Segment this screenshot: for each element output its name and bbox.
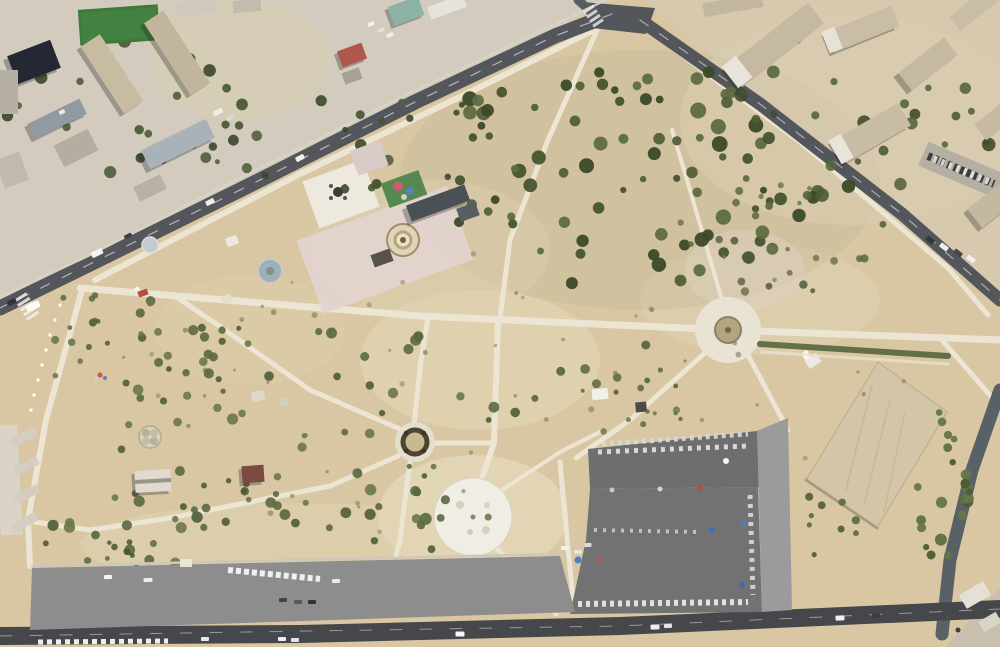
trees-urban-nw-tree bbox=[104, 166, 116, 178]
trees-urban-ne-tree bbox=[960, 83, 971, 94]
trees-urban-nw-tree bbox=[135, 125, 144, 134]
trees-south-band-tree bbox=[180, 503, 187, 510]
stall-markers-dot bbox=[658, 487, 663, 492]
vehicles-car bbox=[835, 615, 844, 620]
shrub-speckle-tree bbox=[261, 305, 264, 308]
screenshot-stage bbox=[0, 0, 1000, 647]
woodland-ne-tree bbox=[765, 202, 773, 210]
trees-mid-park-tree bbox=[303, 500, 309, 506]
big-circle-marks-dot bbox=[482, 526, 490, 534]
trees-north-band-tree bbox=[398, 99, 405, 106]
vehicles-car bbox=[201, 637, 209, 641]
trees-north-band-tree bbox=[235, 121, 243, 129]
shrub-speckle-tree bbox=[634, 314, 637, 317]
trees-enclosure-tree bbox=[809, 513, 814, 518]
woodland-ne-tree bbox=[656, 96, 664, 104]
trees-south-band-tree bbox=[441, 495, 450, 504]
trees-east-road-tree bbox=[966, 489, 973, 496]
ring-plaza-center-dot bbox=[725, 327, 731, 333]
trees-mid-park-tree bbox=[403, 344, 413, 354]
monument-center-dot bbox=[343, 184, 347, 188]
woodland-ne-tree bbox=[792, 209, 805, 222]
trees-south-band-tree bbox=[222, 518, 230, 526]
shrubs-market-north-tree bbox=[600, 428, 607, 435]
pavilion-dark bbox=[635, 402, 647, 413]
shrub-speckle-tree bbox=[149, 352, 154, 357]
trees-mid-park-tree bbox=[236, 326, 241, 331]
trees-south-band-tree bbox=[64, 521, 75, 532]
shrub-speckle-tree bbox=[856, 370, 860, 374]
trees-north-band-tree bbox=[261, 172, 268, 179]
trees-mid-park-tree bbox=[274, 473, 281, 480]
trees-east-sparse-tree bbox=[644, 378, 650, 384]
parking-ticks-dot bbox=[53, 318, 56, 321]
trees-enclosure-tree bbox=[812, 552, 817, 557]
parking-ticks-dot bbox=[29, 408, 32, 411]
woodland-ne-tree bbox=[497, 87, 508, 98]
woodland-ne-tree bbox=[690, 103, 706, 119]
trees-urban-ne-tree bbox=[894, 178, 906, 190]
shrub-speckle-tree bbox=[186, 424, 190, 428]
trees-mid-park-tree bbox=[238, 410, 246, 418]
trees-east-sparse-tree bbox=[580, 364, 590, 374]
trees-enclosure-tree bbox=[818, 501, 826, 509]
trees-west-tree bbox=[160, 397, 167, 404]
woodland-ne-tree bbox=[611, 86, 619, 94]
trees-mid-park-tree bbox=[326, 328, 337, 339]
trees-urban-ne-tree bbox=[826, 160, 837, 171]
trees-south-band-tree bbox=[420, 513, 432, 525]
shrubs-market-north-tree bbox=[678, 417, 682, 421]
trees-west-tree bbox=[136, 394, 144, 402]
shrub-speckle-tree bbox=[312, 312, 318, 318]
trees-north-band-tree bbox=[486, 132, 494, 140]
trees-north-band-tree bbox=[236, 99, 248, 111]
spray-ground-dot bbox=[103, 376, 107, 380]
trees-enclosure-tree bbox=[838, 526, 845, 533]
woodland-ne-tree bbox=[561, 80, 572, 91]
shrubs-west-corner-tree bbox=[60, 295, 66, 301]
shrubs-southwest-tree bbox=[107, 541, 111, 545]
trees-enclosure-tree bbox=[852, 516, 860, 524]
trees-enclosure-tree bbox=[805, 493, 813, 501]
trees-east-road-tree bbox=[936, 409, 943, 416]
woodland-ne-tree bbox=[618, 134, 628, 144]
market-access-road bbox=[757, 418, 792, 612]
shrubs-ne-triangle-tree bbox=[688, 241, 694, 247]
vehicles-car bbox=[291, 638, 299, 642]
trees-south-band-tree bbox=[122, 520, 132, 530]
stall-markers-dot bbox=[709, 527, 715, 533]
shrubs-ne-triangle-tree bbox=[735, 187, 743, 195]
trees-east-road-tree bbox=[951, 436, 958, 443]
fountain-center-dot bbox=[400, 237, 406, 243]
trees-mid-park-tree bbox=[227, 413, 238, 424]
trees-south-band-tree bbox=[428, 545, 436, 553]
trees-west-tree bbox=[220, 389, 225, 394]
trees-north-band-tree bbox=[215, 159, 220, 164]
trees-mid-park-tree bbox=[333, 373, 341, 381]
trees-mid-park-tree bbox=[341, 429, 348, 436]
shrub-speckle-tree bbox=[756, 403, 759, 406]
trees-urban-nw-tree bbox=[228, 135, 239, 146]
corner-marks-dot bbox=[956, 628, 961, 633]
shrub-speckle-tree bbox=[367, 302, 372, 307]
trees-east-sparse-tree bbox=[658, 367, 663, 372]
woodland-ne-tree bbox=[842, 180, 855, 193]
trees-urban-ne-tree bbox=[751, 115, 760, 124]
shrubs-ne-triangle-tree bbox=[741, 287, 749, 295]
trees-west-tree bbox=[182, 369, 189, 376]
trees-south-band-tree bbox=[280, 509, 291, 520]
shrubs-southwest-tree bbox=[84, 557, 91, 564]
trees-mid-park-tree bbox=[366, 381, 374, 389]
trees-south-band-tree bbox=[191, 506, 198, 513]
woodland-ne-tree bbox=[675, 275, 687, 287]
trees-mid-park-tree bbox=[246, 497, 252, 503]
parking-ticks-dot bbox=[32, 393, 35, 396]
corner-marks-dot bbox=[946, 616, 950, 620]
trees-mid-park-tree bbox=[125, 421, 132, 428]
trees-mid-park-tree bbox=[486, 417, 492, 423]
shrub-speckle-tree bbox=[649, 307, 654, 312]
vehicles-car bbox=[455, 631, 464, 636]
shrub-speckle-tree bbox=[400, 280, 405, 285]
trees-west-tree bbox=[123, 380, 130, 387]
shrub-speckle-tree bbox=[357, 505, 360, 508]
shrubs-ne-triangle-tree bbox=[799, 280, 807, 288]
shrub-speckle-tree bbox=[700, 418, 704, 422]
woodland-ne-tree bbox=[511, 165, 519, 173]
trees-mid-park-tree bbox=[365, 484, 376, 495]
trees-mid-park-tree bbox=[183, 392, 191, 400]
shrub-speckle-tree bbox=[494, 344, 498, 348]
maroon-building bbox=[241, 465, 264, 483]
trees-mid-park-tree bbox=[201, 483, 207, 489]
big-circle-marks-dot bbox=[456, 501, 464, 509]
big-circle-marks-dot bbox=[467, 529, 473, 535]
shrub-speckle-tree bbox=[736, 352, 742, 358]
woodland-ne-tree bbox=[743, 175, 750, 182]
trees-enclosure-tree bbox=[839, 499, 846, 506]
stall-markers-dot bbox=[723, 458, 729, 464]
shrubs-market-north-tree bbox=[653, 411, 657, 415]
shrubs-ne-triangle-tree bbox=[731, 237, 739, 245]
trees-mid-park-tree bbox=[489, 402, 500, 413]
woodland-ne-tree bbox=[712, 136, 728, 152]
shrubs-ne-triangle-tree bbox=[810, 288, 815, 293]
trees-north-band-tree bbox=[356, 110, 365, 119]
trees-west-tree bbox=[204, 368, 214, 378]
woodland-ne-tree bbox=[774, 193, 787, 206]
shrub-speckle-tree bbox=[461, 489, 465, 493]
trees-enclosure-tree bbox=[807, 522, 812, 527]
woodland-ne-tree bbox=[691, 72, 704, 85]
woodland-ne-tree bbox=[633, 81, 642, 90]
trees-urban-nw-tree bbox=[76, 78, 83, 85]
trees-mid-park-tree bbox=[118, 446, 126, 454]
garden-leaves-dot bbox=[150, 437, 158, 445]
trees-west-tree bbox=[198, 324, 206, 332]
woodland-ne-tree bbox=[642, 74, 653, 85]
trees-urban-ne-tree bbox=[900, 99, 909, 108]
shrubs-ne-triangle-tree bbox=[785, 247, 790, 252]
woodland-ne-tree bbox=[716, 209, 731, 224]
woodland-ne-tree bbox=[559, 168, 569, 178]
woodland-ne-tree bbox=[652, 258, 666, 272]
shrub-speckle-tree bbox=[290, 281, 293, 284]
court-equipment-dot bbox=[393, 181, 403, 191]
trees-south-band-tree bbox=[273, 491, 279, 497]
trees-mid-park-tree bbox=[456, 392, 464, 400]
woodland-ne-tree bbox=[455, 175, 465, 185]
trees-south-band-tree bbox=[172, 516, 179, 523]
woodland-ne-tree bbox=[640, 176, 646, 182]
vehicles-car bbox=[574, 550, 582, 554]
trees-south-band-tree bbox=[200, 524, 207, 531]
shrub-speckle-tree bbox=[469, 450, 473, 454]
woodland-ne-tree bbox=[594, 67, 604, 77]
shrub-speckle-tree bbox=[803, 456, 808, 461]
woodland-ne-tree bbox=[531, 104, 538, 111]
shrubs-ne-triangle-tree bbox=[742, 253, 751, 262]
shrub-speckle-tree bbox=[266, 381, 269, 384]
shrub-speckle-tree bbox=[862, 392, 866, 396]
trees-west-tree bbox=[204, 350, 213, 359]
shrubs-ne-triangle-tree bbox=[678, 219, 684, 225]
shrubs-ne-triangle-tree bbox=[771, 248, 775, 252]
trees-south-band-tree bbox=[371, 537, 378, 544]
trees-east-road-tree bbox=[923, 544, 929, 550]
shrubs-ne-triangle-tree bbox=[787, 270, 793, 276]
trees-mid-park-tree bbox=[365, 509, 376, 520]
trees-east-road-tree bbox=[943, 443, 952, 452]
trees-east-sparse-tree bbox=[592, 379, 601, 388]
trees-mid-park-tree bbox=[219, 338, 226, 345]
trees-west-tree bbox=[245, 340, 252, 347]
shrub-speckle-tree bbox=[514, 394, 517, 397]
woodland-ne-tree bbox=[692, 188, 702, 198]
woodland-ne-tree bbox=[566, 277, 578, 289]
shrub-speckle-tree bbox=[326, 470, 329, 473]
trees-south-band-tree bbox=[437, 514, 445, 522]
trees-urban-ne-tree bbox=[925, 85, 932, 92]
parking-ticks-dot bbox=[40, 363, 43, 366]
trees-south-band-tree bbox=[340, 507, 351, 518]
shrub-speckle-tree bbox=[290, 494, 295, 499]
trees-north-band-tree bbox=[209, 142, 217, 150]
trees-east-sparse-tree bbox=[673, 384, 678, 389]
trees-urban-ne-tree bbox=[815, 188, 829, 202]
trees-urban-nw-tree bbox=[173, 92, 181, 100]
hub-ornament-dot bbox=[422, 449, 426, 453]
woodland-ne-tree bbox=[752, 205, 759, 212]
trees-urban-ne-tree bbox=[952, 112, 961, 121]
shrubs-ne-triangle-tree bbox=[752, 212, 759, 219]
trees-mid-park-tree bbox=[264, 371, 274, 381]
trees-urban-nw-tree bbox=[222, 84, 231, 93]
shrubs-ne-triangle-tree bbox=[830, 257, 838, 265]
trees-mid-park-tree bbox=[216, 376, 222, 382]
shrub-speckle-tree bbox=[471, 251, 476, 256]
trees-west-tree bbox=[154, 358, 163, 367]
trees-west-tree bbox=[138, 331, 143, 336]
trees-west-tree bbox=[154, 328, 162, 336]
vehicles-car bbox=[308, 600, 316, 604]
stall-markers-dot bbox=[610, 488, 615, 493]
woodland-ne-tree bbox=[696, 134, 704, 142]
big-circle-marks-dot bbox=[484, 502, 490, 508]
woodland-ne-tree bbox=[640, 93, 652, 105]
vehicles-car bbox=[561, 546, 569, 550]
trees-west-tree bbox=[53, 373, 59, 379]
woodland-ne-tree bbox=[653, 133, 665, 145]
trees-mid-park-tree bbox=[326, 524, 333, 531]
stall-markers-dot bbox=[698, 485, 703, 490]
trees-south-band-tree bbox=[134, 496, 145, 507]
shrubs-west-corner-tree bbox=[89, 295, 95, 301]
woodland-ne-tree bbox=[686, 167, 698, 179]
shrub-speckle-tree bbox=[156, 393, 161, 398]
trees-north-band-tree bbox=[445, 174, 451, 180]
trees-west-tree bbox=[199, 357, 208, 366]
trees-north-band-tree bbox=[251, 131, 262, 142]
trees-mid-park-tree bbox=[291, 519, 300, 528]
car-row bbox=[38, 641, 168, 642]
woodland-ne-tree bbox=[579, 158, 594, 173]
woodland-ne-tree bbox=[576, 82, 585, 91]
trees-urban-ne-tree bbox=[982, 138, 996, 152]
trees-east-sparse-tree bbox=[581, 389, 585, 393]
woodland-ne-tree bbox=[756, 225, 770, 239]
trees-south-band-tree bbox=[91, 531, 100, 540]
vehicles-car bbox=[332, 579, 340, 583]
monument-center-dot bbox=[333, 187, 343, 197]
shrubs-southwest-tree bbox=[105, 556, 110, 561]
monument-center-dot bbox=[329, 184, 333, 188]
trees-mid-park-tree bbox=[164, 352, 172, 360]
woodland-ne-tree bbox=[576, 249, 586, 259]
woodland-ne-tree bbox=[481, 104, 494, 117]
big-circle-marks-dot bbox=[471, 515, 476, 520]
shrub-speckle-tree bbox=[239, 317, 244, 322]
trees-north-band-tree bbox=[368, 184, 376, 192]
trees-urban-ne-tree bbox=[742, 153, 753, 164]
trees-west-tree bbox=[133, 385, 144, 396]
trees-mid-park-tree bbox=[431, 464, 437, 470]
shrub-speckle-tree bbox=[521, 296, 525, 300]
trees-south-band-tree bbox=[112, 494, 119, 501]
woodland-ne-tree bbox=[597, 79, 608, 90]
trees-mid-park-tree bbox=[365, 429, 375, 439]
trees-north-band-tree bbox=[242, 163, 252, 173]
trees-east-sparse-tree bbox=[637, 385, 644, 392]
woodland-ne-tree bbox=[703, 66, 715, 78]
trees-north-band-tree bbox=[316, 95, 327, 106]
woodland-ne-tree bbox=[570, 116, 581, 127]
trees-north-band-tree bbox=[342, 127, 348, 133]
shrubs-ne-triangle-tree bbox=[813, 255, 819, 261]
trees-west-tree bbox=[147, 299, 155, 307]
woodland-ne-tree bbox=[719, 153, 726, 160]
woodland-ne-tree bbox=[648, 147, 661, 160]
woodland-ne-tree bbox=[532, 150, 546, 164]
woodland-ne-tree bbox=[711, 119, 726, 134]
trees-east-sparse-tree bbox=[614, 390, 619, 395]
trees-east-road-tree bbox=[958, 511, 967, 520]
shrub-speckle-tree bbox=[733, 341, 738, 346]
shrubs-market-north-tree bbox=[673, 406, 680, 413]
trees-urban-ne-tree bbox=[879, 146, 889, 156]
monument-center-dot bbox=[329, 196, 333, 200]
shrub-speckle-tree bbox=[271, 309, 277, 315]
woodland-ne-tree bbox=[672, 136, 681, 145]
trees-urban-ne-tree bbox=[811, 111, 819, 119]
shrub-speckle-tree bbox=[388, 349, 391, 352]
woodland-ne-tree bbox=[576, 235, 588, 247]
trees-mid-park-tree bbox=[360, 352, 369, 361]
garden-leaves-dot bbox=[142, 437, 150, 445]
trees-mid-park-tree bbox=[422, 473, 428, 479]
trees-enclosure-tree bbox=[853, 530, 859, 536]
trees-east-road-tree bbox=[960, 479, 970, 489]
trees-east-road-tree bbox=[944, 551, 952, 559]
woodland-ne-tree bbox=[593, 202, 605, 214]
aerial-satellite-photo bbox=[0, 0, 1000, 647]
vehicles-car bbox=[664, 624, 672, 628]
shrubs-ne-triangle-tree bbox=[797, 201, 801, 205]
trees-east-road-tree bbox=[914, 483, 922, 491]
trees-east-road-tree bbox=[938, 418, 947, 427]
trees-east-sparse-tree bbox=[613, 373, 622, 382]
spray-ground-dot bbox=[94, 377, 98, 381]
market-lot-main bbox=[570, 487, 762, 614]
woodland-ne-tree bbox=[491, 195, 500, 204]
shrubs-west-corner-tree bbox=[67, 325, 72, 330]
garden-leaves-dot bbox=[150, 429, 158, 437]
shrubs-southwest-tree bbox=[150, 540, 157, 547]
shrubs-southwest-tree bbox=[127, 539, 133, 545]
parking-ticks-dot bbox=[48, 333, 51, 336]
trees-urban-nw-tree bbox=[144, 130, 152, 138]
vehicles-car bbox=[104, 575, 112, 579]
garden-feature bbox=[139, 426, 161, 448]
hub-ornament-dot bbox=[422, 431, 426, 435]
kiosk bbox=[180, 559, 192, 567]
trees-west-tree bbox=[213, 404, 221, 412]
stall-markers-dot bbox=[575, 557, 582, 564]
trees-mid-park-tree bbox=[379, 410, 385, 416]
hub-ornament-dot bbox=[404, 449, 408, 453]
trees-urban-ne-tree bbox=[830, 78, 837, 85]
shrubs-ne-triangle-tree bbox=[807, 186, 812, 191]
shrubs-southwest-tree bbox=[43, 540, 49, 546]
trees-west-tree bbox=[218, 326, 225, 333]
vehicles-car bbox=[278, 637, 286, 641]
trees-east-road-tree bbox=[944, 431, 952, 439]
trees-mid-park-tree bbox=[302, 433, 307, 438]
pavilion-white bbox=[592, 388, 609, 400]
shrub-speckle-tree bbox=[183, 328, 188, 333]
trees-mid-park-tree bbox=[352, 468, 362, 478]
trees-west-tree bbox=[51, 336, 59, 344]
trees-mid-park-tree bbox=[410, 486, 420, 496]
spray-ground-dot bbox=[98, 373, 103, 378]
trees-east-sparse-tree bbox=[531, 395, 538, 402]
shrub-speckle-tree bbox=[122, 356, 125, 359]
woodland-ne-tree bbox=[463, 106, 477, 120]
vehicles-car bbox=[650, 624, 659, 629]
